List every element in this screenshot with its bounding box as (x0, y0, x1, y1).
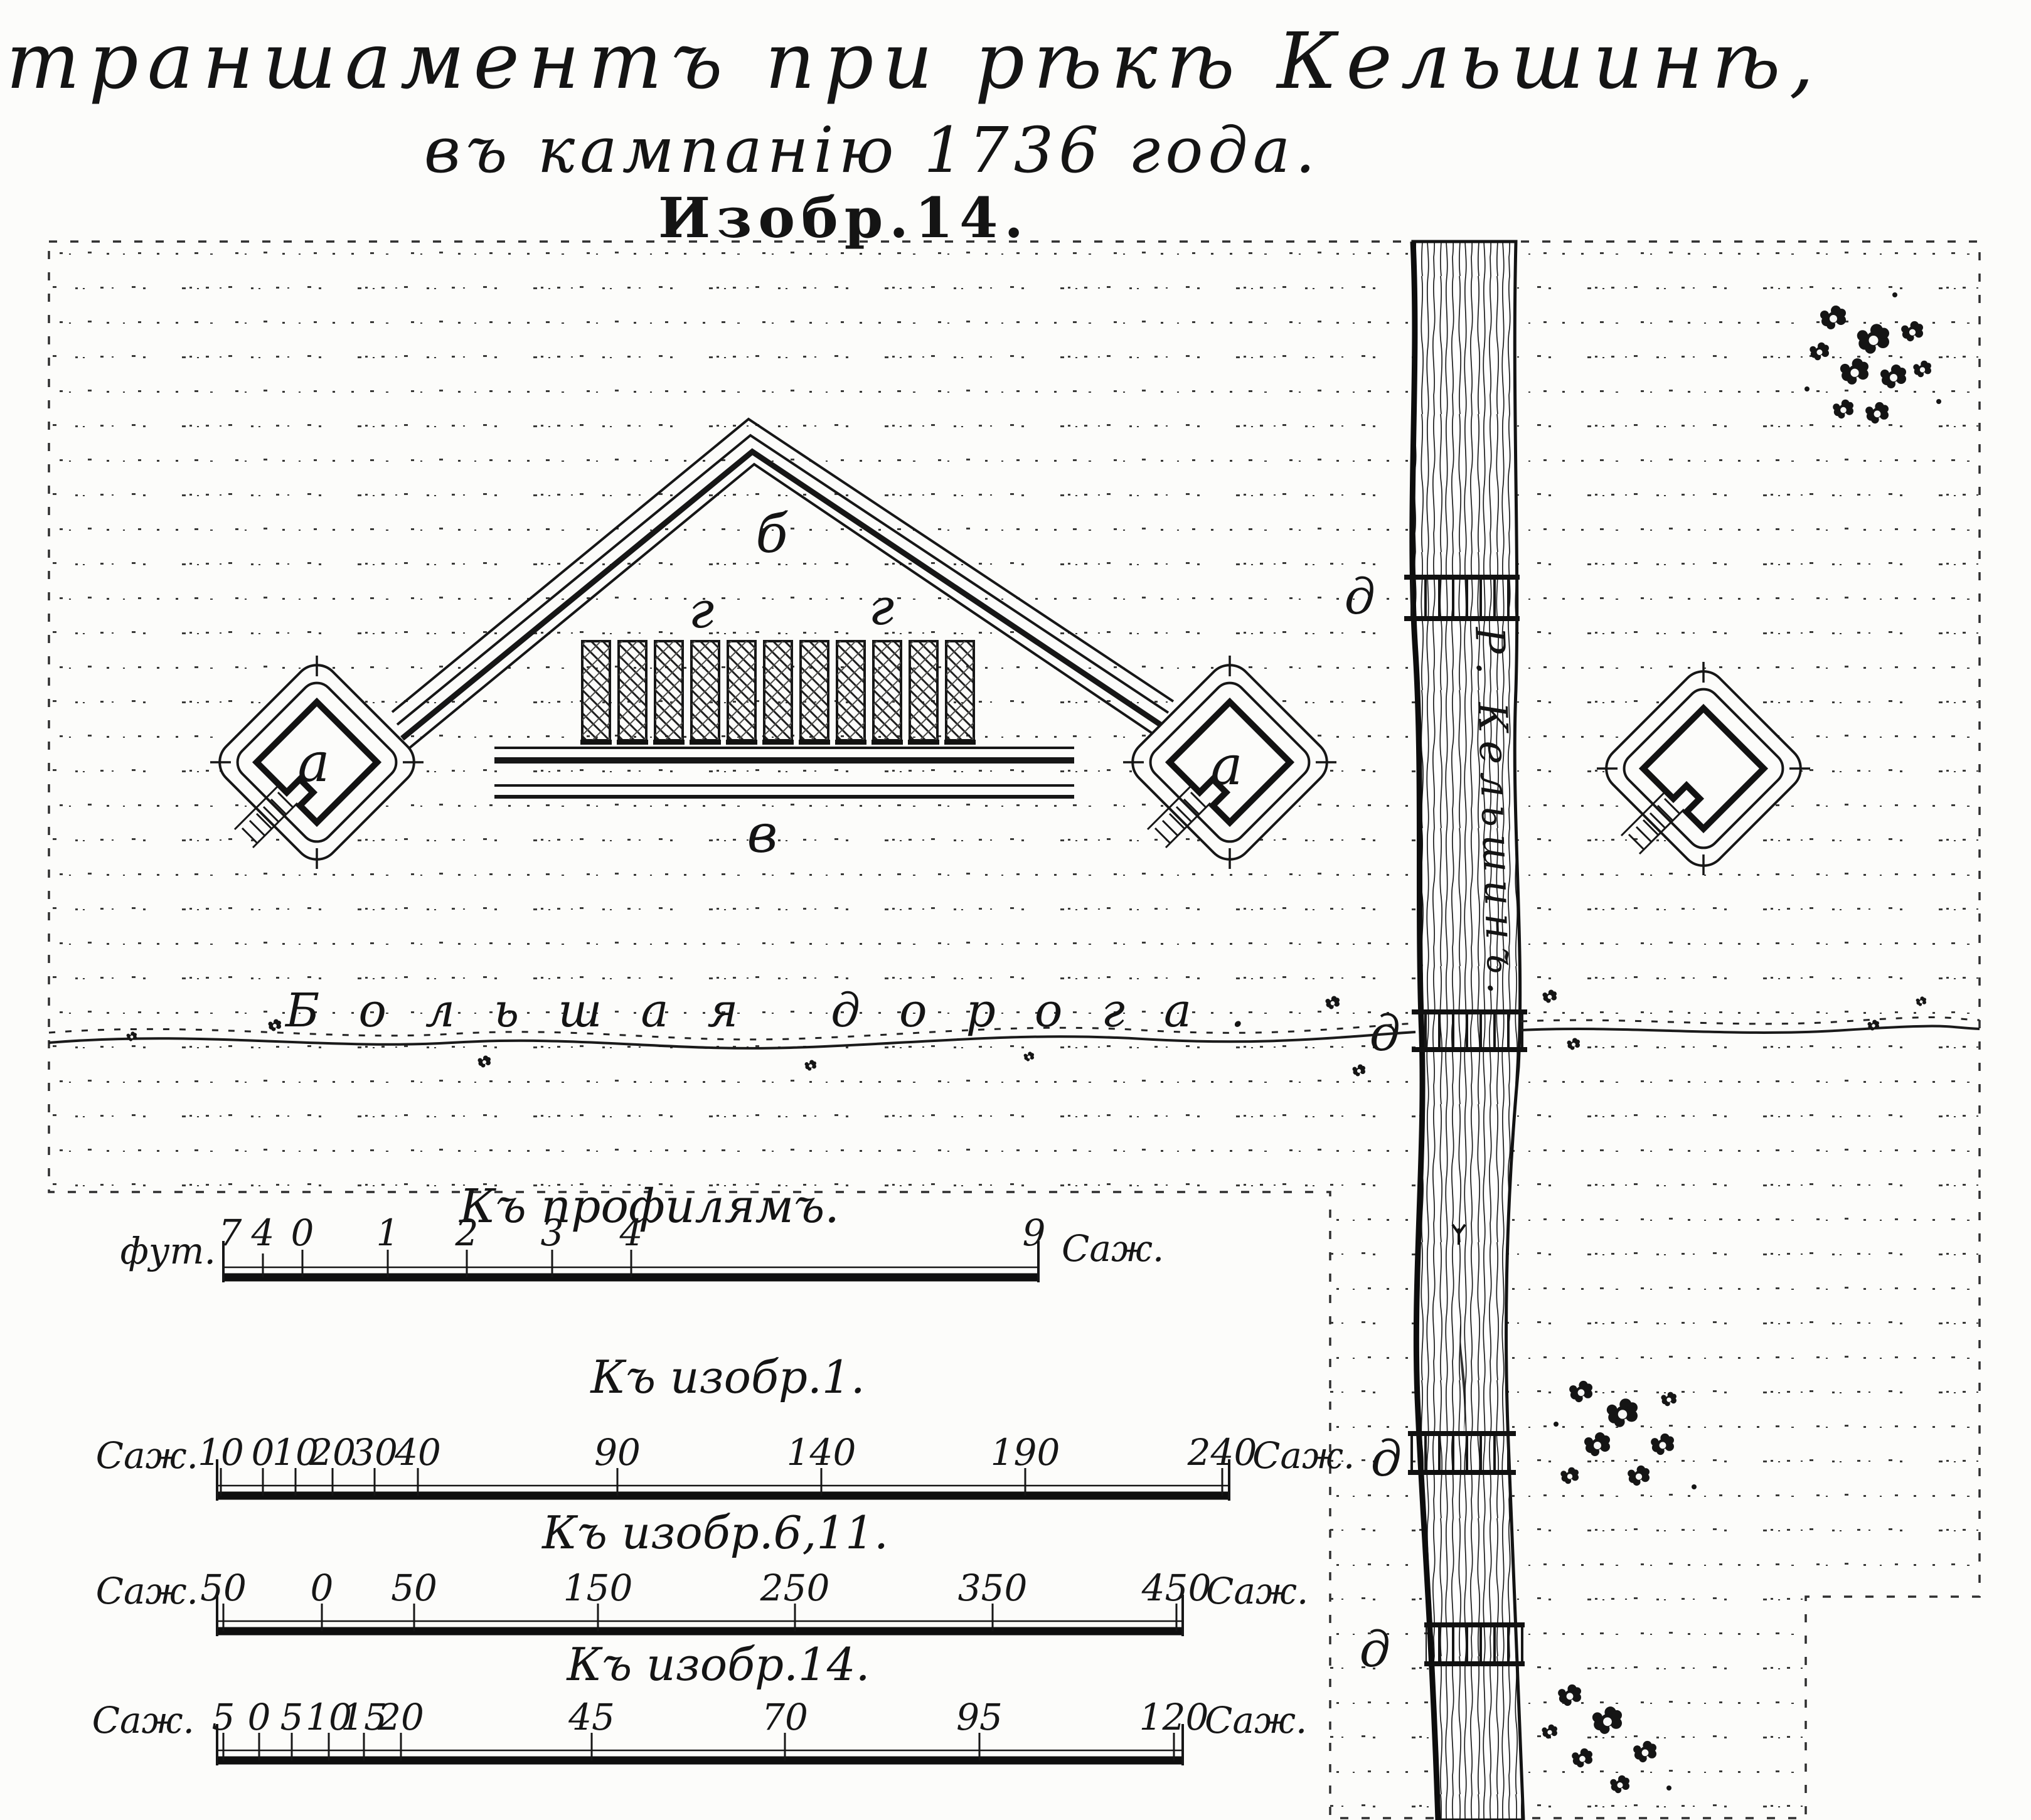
scale-tick: 5 (280, 1696, 304, 1738)
scale-tick: 120 (1139, 1696, 1209, 1738)
scanned-map-sheet: Ретраншаментъ при рѣкѣ Кельшинѣ, въ камп… (0, 0, 2031, 1820)
scale-profiles-unit-left: фут. (120, 1230, 216, 1272)
curtain-wall-label: б (755, 503, 788, 565)
retrenchment-line-label: в (747, 803, 778, 865)
barracks-label-1: г (689, 581, 714, 639)
scale-tick: 45 (568, 1696, 615, 1738)
scale-fig6-11-unit-right: Саж. (1206, 1570, 1308, 1612)
scale-tick: 0 (248, 1696, 271, 1738)
scale-tick: 150 (563, 1567, 633, 1609)
scale-tick: 9 (1023, 1211, 1046, 1254)
scale-fig6-11: Къ изобр.6,11. Саж. 50 0 50 150 250 350 … (96, 1506, 1309, 1636)
bridge-1: д (1345, 569, 1520, 625)
scale-fig1: Къ изобр.1. Саж. 10 0 10 20 30 40 90 140… (96, 1351, 1355, 1501)
scale-tick: 240 (1187, 1431, 1257, 1474)
scale-tick: 7 (219, 1211, 242, 1254)
scale-profiles-heading: Къ профилямъ. (458, 1179, 840, 1233)
scale-tick: 350 (958, 1567, 1028, 1609)
scale-fig1-heading: Къ изобр.1. (589, 1351, 865, 1403)
scale-tick: 90 (594, 1431, 641, 1474)
scale-tick: 450 (1141, 1567, 1212, 1609)
map-title-line2: въ кампанію 1736 года. (424, 114, 1320, 187)
scale-tick: 20 (377, 1696, 424, 1738)
scale-tick: 3 (541, 1211, 564, 1254)
scale-tick: 4 (251, 1211, 275, 1254)
scale-tick: 50 (391, 1567, 437, 1609)
scale-tick: 95 (956, 1696, 1003, 1738)
scale-fig14: Къ изобр.14. Саж. 5 0 5 10 15 20 45 70 9… (92, 1638, 1308, 1765)
road-name-label: Большая дорога. (284, 984, 1284, 1038)
scale-tick: 0 (252, 1431, 275, 1474)
scale-fig6-11-unit-left: Саж. (96, 1570, 198, 1612)
scale-fig14-heading: Къ изобр.14. (565, 1638, 870, 1691)
scale-tick: 2 (455, 1211, 479, 1254)
redoubt-middle-label: а (1210, 735, 1242, 797)
scale-tick: 190 (991, 1431, 1060, 1474)
scale-tick: 250 (760, 1567, 830, 1609)
scale-tick: 40 (394, 1431, 441, 1474)
bridge-3-label: д (1371, 1431, 1402, 1487)
scale-tick: 0 (291, 1211, 314, 1254)
bridge-1-label: д (1345, 569, 1375, 625)
scale-tick: 70 (762, 1696, 808, 1738)
scale-tick: 20 (309, 1431, 356, 1474)
barracks-row (580, 641, 976, 742)
scale-tick: 140 (787, 1431, 856, 1474)
map-plan-svg: Ретраншаментъ при рѣкѣ Кельшинѣ, въ камп… (0, 0, 2031, 1820)
scale-tick: 0 (311, 1567, 334, 1609)
scale-fig1-unit-right: Саж. (1252, 1434, 1355, 1477)
scale-tick: 50 (200, 1567, 247, 1609)
bridge-4-label: д (1360, 1622, 1390, 1678)
scale-tick: 30 (351, 1431, 398, 1474)
scale-fig14-unit-right: Саж. (1205, 1699, 1307, 1742)
map-title-line1: Ретраншаментъ при рѣкѣ Кельшинѣ, (0, 16, 1823, 107)
redoubt-left-label: а (297, 732, 329, 794)
scale-tick: 10 (198, 1431, 244, 1474)
scale-fig14-unit-left: Саж. (92, 1699, 195, 1742)
scale-tick: 4 (619, 1211, 643, 1254)
scale-profiles-unit-right: Саж. (1062, 1227, 1164, 1270)
barracks-label-2: г (869, 578, 894, 636)
scale-fig1-unit-left: Саж. (96, 1434, 198, 1477)
scale-profiles: Къ профилямъ. фут. 7 4 0 1 2 3 4 9 Саж. (120, 1179, 1165, 1282)
scale-fig6-11-heading: Къ изобр.6,11. (541, 1506, 888, 1559)
scale-tick: 1 (376, 1211, 400, 1254)
scale-tick: 5 (212, 1696, 235, 1738)
